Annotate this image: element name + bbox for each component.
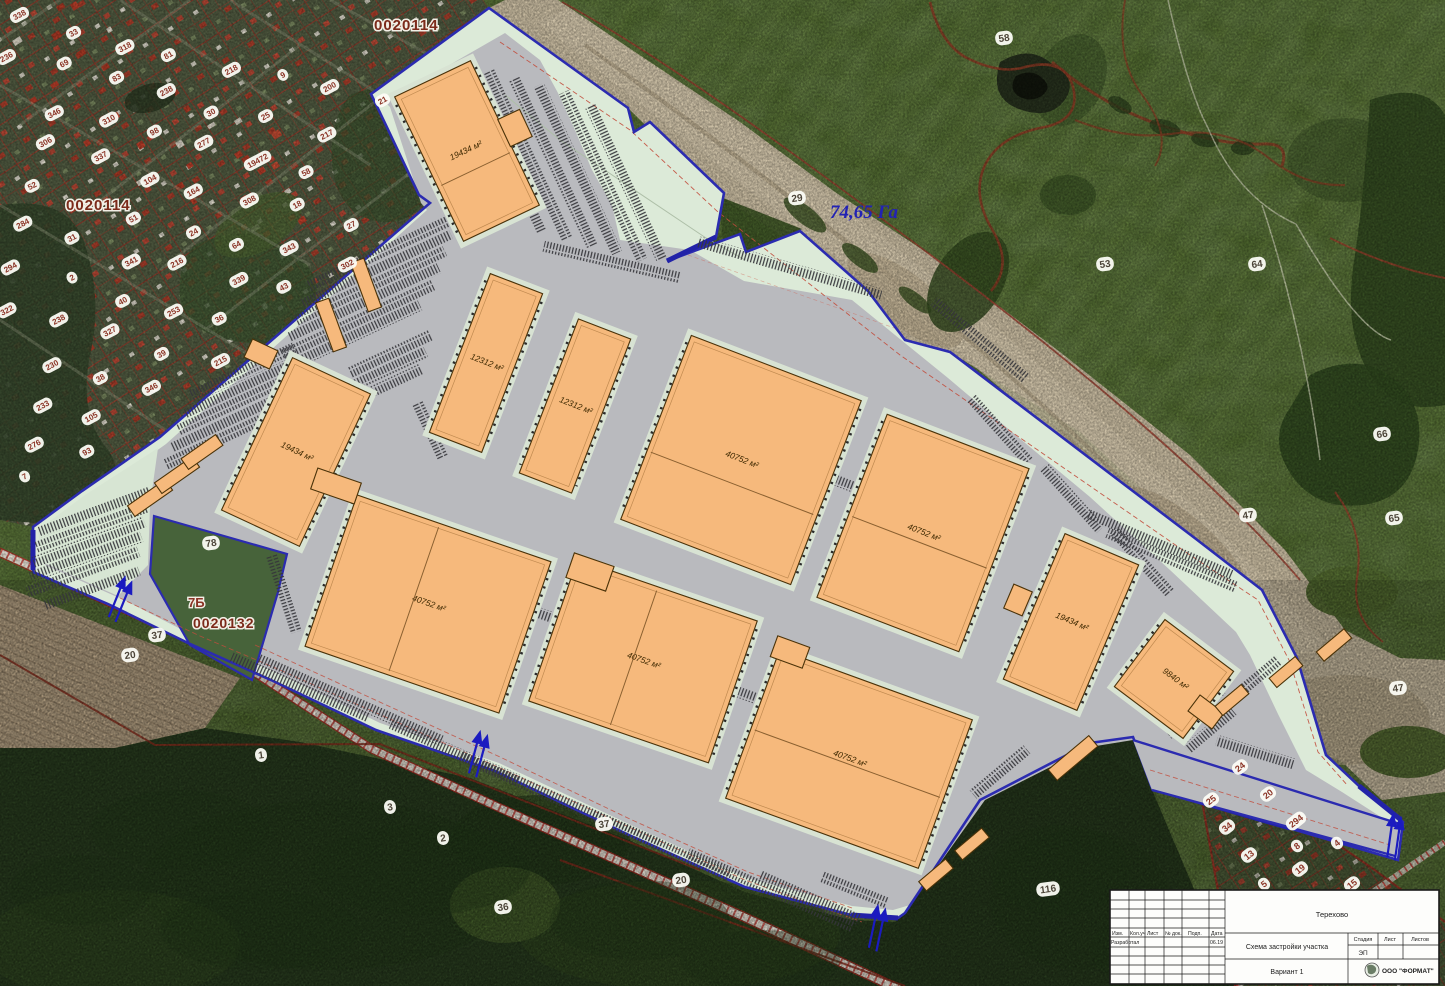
svg-text:№ док.: № док. (1165, 931, 1182, 937)
svg-text:37: 37 (151, 630, 164, 643)
svg-text:20: 20 (675, 875, 688, 888)
svg-text:37: 37 (598, 819, 611, 832)
svg-text:74,65 Га: 74,65 Га (830, 202, 899, 223)
svg-text:53: 53 (1099, 259, 1112, 272)
svg-text:64: 64 (1251, 259, 1264, 272)
svg-text:06.19: 06.19 (1210, 940, 1223, 946)
svg-text:Разработал: Разработал (1111, 940, 1139, 946)
svg-text:47: 47 (1392, 683, 1405, 696)
svg-text:66: 66 (1376, 429, 1389, 442)
svg-text:Стадия: Стадия (1354, 937, 1373, 943)
svg-text:58: 58 (998, 33, 1011, 46)
svg-text:47: 47 (1242, 510, 1255, 523)
svg-text:78: 78 (205, 538, 218, 551)
svg-text:ООО "ФОРМАТ": ООО "ФОРМАТ" (1382, 968, 1434, 975)
svg-text:Листов: Листов (1411, 937, 1429, 943)
svg-text:29: 29 (791, 193, 804, 206)
svg-text:Терехово: Терехово (1316, 910, 1348, 919)
svg-text:20: 20 (124, 650, 137, 663)
svg-text:7Б: 7Б (188, 595, 205, 610)
svg-text:116: 116 (1039, 883, 1057, 896)
svg-text:0020114: 0020114 (66, 197, 131, 214)
svg-text:Подп.: Подп. (1188, 931, 1202, 937)
svg-text:Лист: Лист (1147, 931, 1159, 937)
svg-text:Вариант 1: Вариант 1 (1270, 969, 1303, 976)
svg-text:Лист: Лист (1384, 937, 1396, 943)
svg-text:0020114: 0020114 (374, 17, 439, 34)
svg-text:Изм.: Изм. (1112, 931, 1123, 937)
svg-text:ЭП: ЭП (1358, 950, 1368, 957)
svg-text:Дата: Дата (1211, 931, 1223, 937)
svg-text:Схема застройки участка: Схема застройки участка (1246, 943, 1328, 951)
svg-text:36: 36 (497, 902, 510, 915)
svg-text:0020132: 0020132 (193, 615, 255, 631)
svg-text:Кол.уч: Кол.уч (1130, 931, 1146, 937)
svg-text:65: 65 (1388, 513, 1401, 526)
